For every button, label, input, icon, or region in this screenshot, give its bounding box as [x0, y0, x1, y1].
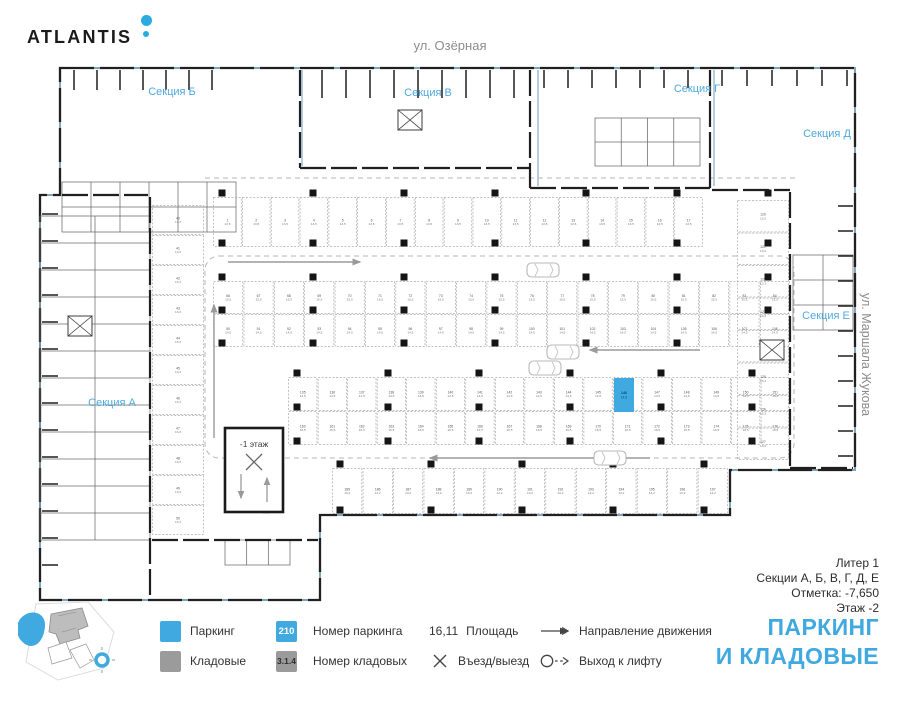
svg-text:13,2: 13,2	[527, 491, 533, 495]
svg-text:13,5: 13,5	[599, 222, 605, 226]
svg-text:14,5: 14,5	[772, 331, 778, 335]
section-label-b: Секция Б	[148, 86, 196, 98]
svg-text:15,5: 15,5	[590, 298, 596, 302]
legend-area: 16,11 Площадь	[429, 624, 540, 638]
svg-text:13,5: 13,5	[253, 222, 259, 226]
svg-text:13,5: 13,5	[369, 222, 375, 226]
svg-text:16,5: 16,5	[566, 428, 572, 432]
svg-text:15,5: 15,5	[711, 298, 717, 302]
svg-text:16,5: 16,5	[625, 428, 631, 432]
legend-parking: Паркинг	[160, 621, 276, 642]
svg-text:13,2: 13,2	[710, 491, 716, 495]
svg-text:15,5: 15,5	[650, 298, 656, 302]
section-label-a: Секция А	[88, 397, 136, 409]
svg-text:16,5: 16,5	[536, 428, 542, 432]
car-icon	[547, 345, 579, 359]
svg-text:15,5: 15,5	[347, 298, 353, 302]
svg-text:14,5: 14,5	[713, 394, 719, 398]
svg-text:14,5: 14,5	[407, 331, 413, 335]
info-elevation: Отметка: -7,650	[756, 586, 879, 601]
section-label-g: Секция Г	[674, 83, 720, 95]
svg-text:13,3: 13,3	[175, 370, 181, 374]
section-label-d: Секция Д	[803, 128, 851, 140]
svg-text:14,5: 14,5	[477, 394, 483, 398]
svg-text:15,5: 15,5	[225, 298, 231, 302]
plan-outer-boundary	[40, 68, 855, 600]
svg-text:13,3: 13,3	[175, 490, 181, 494]
legend-parking-number: 210 Номер паркинга	[276, 621, 429, 642]
svg-text:13,5: 13,5	[628, 222, 634, 226]
svg-text:14,5: 14,5	[621, 395, 627, 399]
svg-text:15,5: 15,5	[498, 298, 504, 302]
svg-text:14,5: 14,5	[681, 331, 687, 335]
svg-text:14,5: 14,5	[447, 394, 453, 398]
svg-text:16,5: 16,5	[418, 428, 424, 432]
svg-text:13,5: 13,5	[311, 222, 317, 226]
legend-direction: Направление движения	[540, 624, 712, 638]
svg-text:13,2: 13,2	[466, 491, 472, 495]
info-sections: Секции А, Б, В, Г, Д, Е	[756, 571, 879, 586]
svg-text:15,5: 15,5	[407, 298, 413, 302]
svg-text:13,3: 13,3	[175, 310, 181, 314]
svg-text:13,5: 13,5	[224, 222, 230, 226]
svg-text:16,5: 16,5	[743, 428, 749, 432]
svg-text:13,2: 13,2	[497, 491, 503, 495]
svg-text:13,3: 13,3	[760, 249, 766, 253]
svg-text:13,2: 13,2	[618, 491, 624, 495]
car-icon	[527, 263, 559, 277]
section-label-v: Секция В	[404, 87, 452, 99]
svg-text:14,5: 14,5	[595, 394, 601, 398]
svg-text:16,5: 16,5	[329, 428, 335, 432]
svg-text:14,5: 14,5	[388, 394, 394, 398]
legend-storage: Кладовые	[160, 651, 276, 672]
svg-text:14,5: 14,5	[359, 394, 365, 398]
svg-text:13,5: 13,5	[513, 222, 519, 226]
svg-text:16,5: 16,5	[447, 428, 453, 432]
svg-text:13,2: 13,2	[588, 491, 594, 495]
svg-text:14,5: 14,5	[684, 394, 690, 398]
svg-text:13,2: 13,2	[405, 491, 411, 495]
svg-text:13,5: 13,5	[282, 222, 288, 226]
svg-text:14,5: 14,5	[498, 331, 504, 335]
svg-text:15,5: 15,5	[529, 298, 535, 302]
elevator-exit-icon	[540, 653, 572, 669]
svg-text:14,5: 14,5	[418, 394, 424, 398]
svg-text:13,2: 13,2	[557, 491, 563, 495]
svg-text:13,3: 13,3	[760, 314, 766, 318]
svg-text:13,3: 13,3	[760, 379, 766, 383]
svg-text:13,2: 13,2	[375, 491, 381, 495]
svg-text:13,3: 13,3	[760, 216, 766, 220]
svg-text:13,5: 13,5	[686, 222, 692, 226]
svg-text:14,5: 14,5	[559, 331, 565, 335]
svg-text:14,5: 14,5	[286, 331, 292, 335]
svg-text:13,5: 13,5	[426, 222, 432, 226]
svg-text:16,5: 16,5	[359, 428, 365, 432]
svg-text:15,5: 15,5	[559, 298, 565, 302]
svg-text:14,5: 14,5	[590, 331, 596, 335]
svg-text:16,5: 16,5	[684, 428, 690, 432]
svg-text:13,3: 13,3	[175, 520, 181, 524]
svg-text:14,5: 14,5	[329, 394, 335, 398]
svg-text:13,3: 13,3	[175, 430, 181, 434]
svg-text:14,5: 14,5	[347, 331, 353, 335]
entrance-x-icon	[429, 654, 450, 668]
svg-text:14,5: 14,5	[377, 331, 383, 335]
svg-text:13,3: 13,3	[760, 444, 766, 448]
parking-number-swatch: 210	[276, 621, 297, 642]
plan-info-block: Литер 1 Секции А, Б, В, Г, Д, Е Отметка:…	[756, 556, 879, 616]
svg-text:13,3: 13,3	[760, 411, 766, 415]
ramp-label: -1 этаж	[240, 439, 269, 449]
svg-text:13,5: 13,5	[397, 222, 403, 226]
svg-text:15,5: 15,5	[316, 298, 322, 302]
svg-text:14,5: 14,5	[650, 331, 656, 335]
svg-text:16,5: 16,5	[388, 428, 394, 432]
svg-text:14,5: 14,5	[256, 331, 262, 335]
svg-text:13,3: 13,3	[175, 220, 181, 224]
svg-text:16,5: 16,5	[506, 428, 512, 432]
svg-text:14,5: 14,5	[300, 394, 306, 398]
svg-text:14,5: 14,5	[772, 394, 778, 398]
svg-text:13,3: 13,3	[175, 340, 181, 344]
svg-text:16,5: 16,5	[654, 428, 660, 432]
svg-text:13,5: 13,5	[455, 222, 461, 226]
page-title: ПАРКИНГ И КЛАДОВЫЕ	[716, 613, 879, 671]
svg-text:14,5: 14,5	[529, 331, 535, 335]
svg-text:15,5: 15,5	[286, 298, 292, 302]
svg-text:15,5: 15,5	[468, 298, 474, 302]
section-label-e: Секция Е	[802, 310, 850, 322]
svg-text:14,5: 14,5	[711, 331, 717, 335]
svg-text:13,3: 13,3	[175, 250, 181, 254]
svg-text:13,5: 13,5	[541, 222, 547, 226]
svg-text:14,5: 14,5	[536, 394, 542, 398]
svg-text:13,5: 13,5	[340, 222, 346, 226]
pond-shape	[18, 612, 45, 646]
svg-text:146: 146	[621, 391, 627, 395]
selected-parking-spot[interactable]: 14614,5	[614, 378, 634, 412]
svg-text:13,2: 13,2	[679, 491, 685, 495]
svg-text:16,5: 16,5	[772, 428, 778, 432]
svg-text:16,5: 16,5	[477, 428, 483, 432]
svg-text:15,5: 15,5	[681, 298, 687, 302]
legend: Паркинг 210 Номер паркинга 16,11 Площадь…	[160, 616, 712, 676]
svg-text:13,5: 13,5	[570, 222, 576, 226]
parking-swatch	[160, 621, 181, 642]
svg-text:13,2: 13,2	[649, 491, 655, 495]
svg-text:14,5: 14,5	[438, 331, 444, 335]
car-icon	[529, 361, 561, 375]
svg-text:14,5: 14,5	[225, 331, 231, 335]
legend-storage-number: 3.1.4 Номер кладовых	[276, 651, 429, 672]
svg-text:16,5: 16,5	[300, 428, 306, 432]
ramp-to-level-1: -1 этаж	[225, 428, 283, 512]
svg-text:14,5: 14,5	[654, 394, 660, 398]
svg-text:13,5: 13,5	[484, 222, 490, 226]
svg-text:14,5: 14,5	[741, 331, 747, 335]
svg-text:14,5: 14,5	[506, 394, 512, 398]
direction-arrow-icon	[540, 624, 572, 638]
svg-text:14,5: 14,5	[316, 331, 322, 335]
storage-number-swatch: 3.1.4	[276, 651, 297, 672]
svg-text:14,5: 14,5	[566, 394, 572, 398]
svg-text:14,5: 14,5	[468, 331, 474, 335]
svg-text:15,5: 15,5	[377, 298, 383, 302]
legend-exit: Выход к лифту	[540, 653, 712, 669]
svg-text:15,5: 15,5	[620, 298, 626, 302]
svg-text:13,2: 13,2	[436, 491, 442, 495]
svg-text:14,5: 14,5	[620, 331, 626, 335]
svg-text:13,5: 13,5	[657, 222, 663, 226]
svg-text:15,5: 15,5	[438, 298, 444, 302]
info-liter: Литер 1	[756, 556, 879, 571]
svg-text:13,3: 13,3	[175, 460, 181, 464]
legend-entrance: Въезд/выезд	[429, 654, 540, 668]
car-icon	[594, 451, 626, 465]
svg-text:16,5: 16,5	[713, 428, 719, 432]
svg-text:14,5: 14,5	[743, 394, 749, 398]
svg-text:16,5: 16,5	[595, 428, 601, 432]
storage-swatch	[160, 651, 181, 672]
svg-text:15,5: 15,5	[256, 298, 262, 302]
svg-text:13,3: 13,3	[760, 281, 766, 285]
site-minimap	[18, 602, 123, 690]
svg-text:13,3: 13,3	[175, 400, 181, 404]
svg-text:13,2: 13,2	[344, 491, 350, 495]
svg-text:13,3: 13,3	[175, 280, 181, 284]
